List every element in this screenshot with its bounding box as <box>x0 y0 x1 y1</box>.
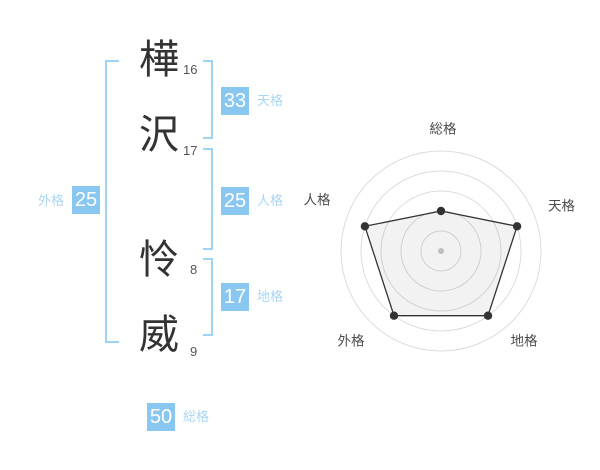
radar-data-point <box>513 222 521 230</box>
chikaku-value-badge: 17 <box>221 283 249 311</box>
radar-data-point <box>390 312 398 320</box>
radar-axis-label: 人格 <box>304 193 331 208</box>
surname-char-2-strokes: 17 <box>183 144 197 158</box>
surname-char-2: 沢 <box>139 115 179 155</box>
jinkaku-label: 人格 <box>257 194 283 208</box>
radar-data-point <box>484 312 492 320</box>
fortune-radar-chart: 総格天格地格外格人格 <box>301 111 591 361</box>
given-char-2-strokes: 9 <box>190 345 197 359</box>
gaikaku-value-badge: 25 <box>72 186 100 214</box>
chikaku-bracket <box>203 258 213 336</box>
surname-char-1: 樺 <box>139 40 179 80</box>
gaikaku-label: 外格 <box>38 194 64 208</box>
radar-axis-label: 地格 <box>511 334 539 349</box>
radar-data-polygon <box>365 211 517 316</box>
surname-char-1-strokes: 16 <box>183 63 197 77</box>
radar-data-point <box>361 222 369 230</box>
tenkaku-bracket <box>203 60 213 139</box>
soukaku-label: 総格 <box>183 410 209 424</box>
jinkaku-bracket <box>203 148 213 250</box>
given-char-1-strokes: 8 <box>190 263 197 277</box>
name-fortune-result-page: 外格 25 樺 16 沢 17 怜 8 威 9 33 天格 25 人格 17 地… <box>0 0 600 470</box>
gaikaku-bracket <box>105 60 119 343</box>
soukaku-value-badge: 50 <box>147 403 175 431</box>
radar-data-point <box>437 207 445 215</box>
radar-axis-label: 総格 <box>430 122 457 137</box>
tenkaku-label: 天格 <box>257 94 283 108</box>
radar-axis-label: 外格 <box>338 334 365 349</box>
given-char-2: 威 <box>139 315 179 355</box>
tenkaku-value-badge: 33 <box>221 87 249 115</box>
jinkaku-value-badge: 25 <box>221 187 249 215</box>
chikaku-label: 地格 <box>257 290 283 304</box>
given-char-1: 怜 <box>139 240 179 280</box>
radar-axis-label: 天格 <box>548 199 576 214</box>
